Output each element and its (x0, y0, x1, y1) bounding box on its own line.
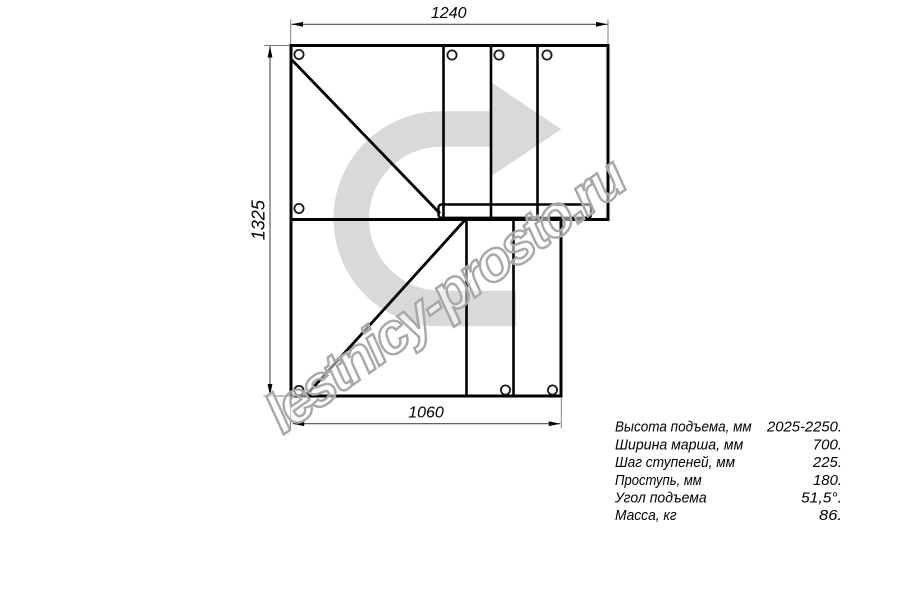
svg-text:225.: 225. (812, 455, 842, 471)
svg-text:Шаг ступеней, мм: Шаг ступеней, мм (615, 455, 735, 471)
svg-text:Высота подъема, мм: Высота подъема, мм (615, 419, 752, 435)
svg-text:1240: 1240 (431, 5, 467, 22)
svg-text:Масса, кг: Масса, кг (615, 508, 677, 524)
svg-text:Проступь, мм: Проступь, мм (615, 473, 702, 489)
svg-text:1325: 1325 (249, 199, 269, 240)
svg-text:700.: 700. (813, 437, 842, 453)
svg-text:86.: 86. (819, 508, 842, 524)
svg-text:Угол подъема: Угол подъема (614, 491, 707, 507)
svg-text:51,5°.: 51,5°. (801, 491, 842, 507)
svg-text:180.: 180. (813, 473, 842, 489)
svg-text:2025-2250.: 2025-2250. (766, 419, 842, 435)
svg-text:Ширина марша, мм: Ширина марша, мм (615, 437, 743, 453)
svg-text:1060: 1060 (408, 404, 444, 421)
